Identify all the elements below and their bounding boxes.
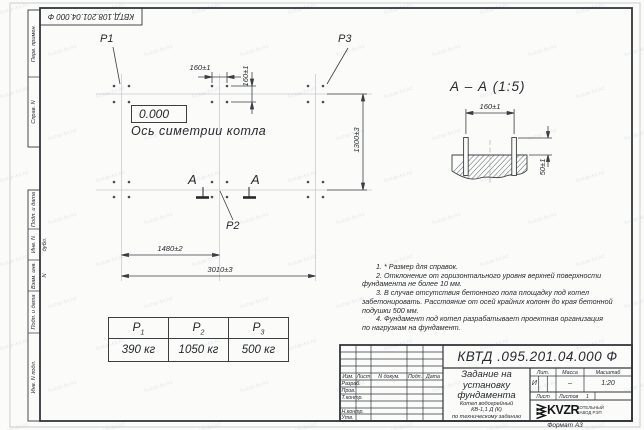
row-label-tkontr: Т.контр. [342, 395, 363, 401]
load-table-header-p3: P3 [229, 318, 289, 339]
load-point-p1-label: P1 [100, 33, 113, 45]
scale-value: 1:20 [584, 376, 632, 392]
col-header-list: Лист [356, 374, 371, 380]
document-number: КВТД .095.201.04.000 Ф [443, 345, 632, 368]
load-p3-value: 500 кг [229, 339, 289, 362]
margin-label-sprav-n: Справ. N [29, 77, 40, 147]
section-cut-marks [196, 187, 256, 198]
drawing-subtitle: Котел водогрейный КВ-1,1 Д (К) по технич… [443, 401, 530, 420]
boiler-symmetry-axis-label: Ось симетрии котла [131, 124, 266, 138]
drawing-title: Задание на установку фундамента [443, 370, 530, 402]
scale-header: Масштаб [584, 370, 632, 376]
drawing-subtitle-line3: по техническому заданию [443, 414, 530, 420]
load-table-header-row: P1 P2 P3 [109, 318, 289, 339]
section-letter-left: А [188, 172, 197, 187]
mass-header: Масса [556, 370, 584, 376]
load-table-value-row: 390 кг 1050 кг 500 кг [109, 339, 289, 362]
row-label-prov: Пров. [342, 388, 356, 394]
load-point-p3-label: P3 [338, 33, 351, 45]
elevation-mark: 0.000 [131, 105, 187, 123]
drawing-title-line3: фундамента [443, 391, 530, 402]
kvzr-logo-caption-line2: ЗАВОД РЭП [577, 410, 604, 415]
drawing-sheet: kvzar-kv.kzkvzar-kv.kzkvzar-kv.kzkvzar-k… [0, 0, 644, 430]
kvzr-zigzag-logo-icon [537, 405, 546, 419]
load-table: P1 P2 P3 390 кг 1050 кг 500 кг [108, 317, 289, 362]
load-p2-value: 1050 кг [169, 339, 229, 362]
section-view-title: А – А (1:5) [450, 79, 526, 94]
margin-label-inv-podl: Инв. N подл. [29, 333, 40, 421]
lit-header: Лит. [530, 370, 556, 376]
col-header-izm: Изм. [340, 374, 356, 380]
technical-notes: 1. * Размер для справок. 2. Отклонение о… [362, 263, 632, 333]
col-header-ndok: N докум. [371, 374, 407, 380]
section-letter-right: А [251, 172, 260, 187]
margin-label-podp-data-2: Подп. и дата [29, 291, 40, 333]
row-label-utv: Утв. [342, 415, 354, 421]
col-header-data: Дата [423, 374, 443, 380]
dim-160-horizontal: 160±1 [182, 63, 218, 72]
dim-160-vertical: 160±1 [241, 58, 251, 94]
col-header-podp: Подп. [407, 374, 423, 380]
margin-label-perv-primen: Перв. примен. [29, 10, 40, 77]
list-label: Лист [530, 394, 556, 400]
corner-stamp: КВТД.108.201.04.000 Ф [40, 8, 142, 25]
section-dim-50: 50±1 [538, 150, 548, 184]
listov-value: 1 [586, 394, 589, 400]
note-line: по нагрузкам на фундамент. [362, 324, 632, 333]
load-table-header-p1: P1 [109, 318, 169, 339]
margin-label-podp-data-1: Подп. и дата [29, 190, 40, 229]
load-p1-value: 390 кг [109, 339, 169, 362]
dim-1480: 1480±2 [146, 244, 194, 253]
lit-value: И [530, 376, 539, 392]
row-label-nkontr: Н.контр. [342, 409, 364, 415]
dim-3010: 3010±3 [196, 265, 244, 274]
margin-label-vzam-inv: Взам. инв. N [29, 260, 40, 291]
mass-value: – [556, 376, 584, 392]
section-dim-160: 160±1 [472, 102, 508, 111]
listov-label: Листов [559, 394, 578, 400]
kvzr-logo-text: KVZR [547, 403, 579, 417]
load-table-header-p2: P2 [169, 318, 229, 339]
kvzr-logo-caption: КОТЕЛЬНЫЙ ЗАВОД РЭП [577, 405, 604, 415]
dim-1300: 1300±3 [352, 114, 362, 166]
anchor-bolt-right [512, 138, 517, 176]
anchor-bolt-dots [113, 85, 325, 199]
format-label: Формат А3 [535, 422, 595, 429]
margin-label-inv-dubl: Инв. N дубл. [29, 229, 40, 260]
row-label-razrab: Разраб. [342, 381, 361, 387]
load-point-p2-label: P2 [226, 220, 239, 232]
anchor-bolt-left [464, 138, 469, 176]
drawing-title-line1: Задание на [443, 370, 530, 381]
